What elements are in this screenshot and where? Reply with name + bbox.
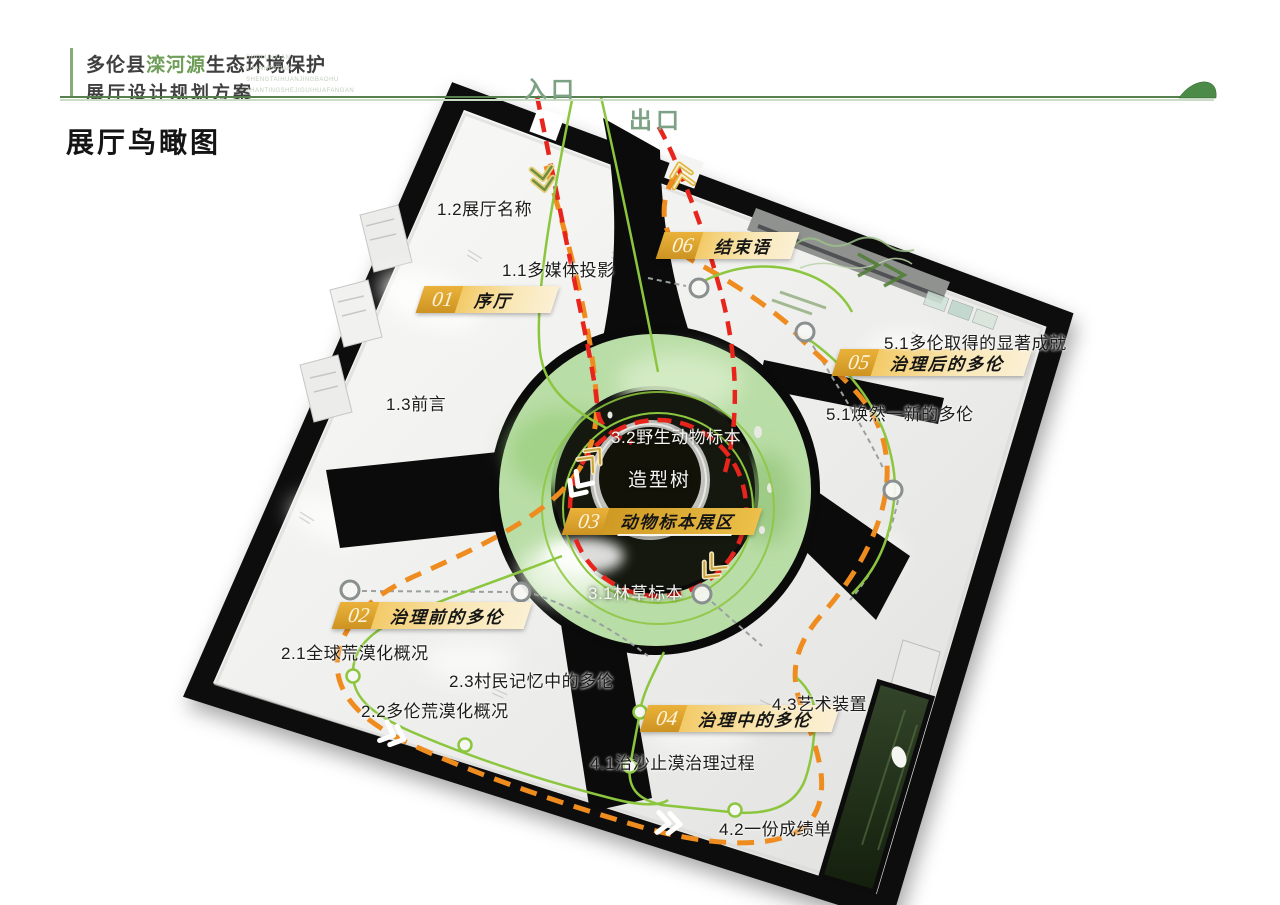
header-accent-bar [70, 48, 73, 98]
plan-sublabel-5-achievements: 5.1多伦取得的显著成就 [884, 329, 1067, 354]
design-proposal-page: 多伦县滦河源生态环境保护 展厅设计规划方案 DUOLUNXIAN LUANHEY… [0, 0, 1280, 905]
zone-name: 结束语 [695, 232, 800, 259]
plan-sublabel-1-2: 1.2展厅名称 [437, 195, 532, 220]
zone-banner-01: 01 序厅 [420, 286, 555, 313]
zone-banner-06: 06 结束语 [660, 232, 795, 259]
plan-sublabel-4-1: 4.1治沙止漠治理过程 [590, 749, 755, 774]
plan-sublabel-2-2: 2.2多伦荒漠化概况 [361, 697, 509, 722]
exit-label: 出口 [629, 101, 683, 135]
doc-title-line2: 展厅设计规划方案 [86, 79, 254, 105]
doc-title-pinyin: DUOLUNXIAN LUANHEYUAN SHENGTAIHUANJINGBA… [246, 53, 354, 97]
zone-banner-02: 02 治理前的多伦 [336, 602, 528, 629]
zone-name: 动物标本展区 [601, 508, 763, 535]
header-divider [60, 96, 1214, 98]
plan-sublabel-3-2: 3.2野生动物标本 [611, 423, 741, 448]
plan-sublabel-4-3: 4.3艺术装置 [772, 690, 867, 715]
plan-sublabel-1-1: 1.1多媒体投影 [502, 256, 615, 281]
plan-sublabel-1-3: 1.3前言 [386, 390, 446, 415]
zone-name: 序厅 [455, 286, 560, 313]
doc-title-part1: 多伦县 [86, 55, 146, 76]
zone-banner-03: 03 动物标本展区 [566, 508, 758, 535]
plan-sublabel-4-2: 4.2一份成绩单 [719, 815, 832, 840]
plan-sublabel-tree: 造型树 [628, 465, 691, 492]
entrance-label: 入口 [524, 70, 578, 104]
plan-sublabel-3-1: 3.1林草标本 [588, 579, 683, 604]
leaf-icon [1178, 79, 1218, 99]
plan-sublabel-2-3: 2.3村民记忆中的多伦 [449, 667, 614, 692]
plan-sublabel-5-renewed: 5.1焕然一新的多伦 [826, 400, 974, 425]
page-title: 展厅鸟瞰图 [66, 121, 221, 161]
zone-name: 治理前的多伦 [371, 602, 533, 629]
plan-sublabel-2-1: 2.1全球荒漠化概况 [281, 639, 429, 664]
doc-title-highlight: 滦河源 [146, 55, 206, 76]
